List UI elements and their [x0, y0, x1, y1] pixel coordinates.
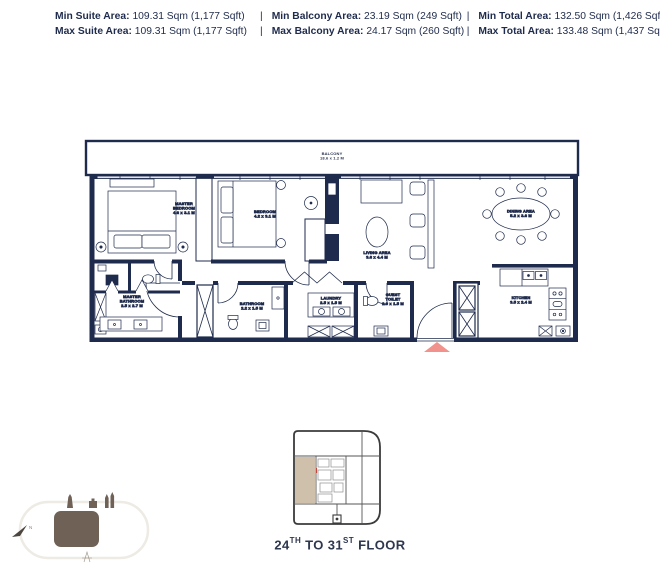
divider: |	[467, 9, 470, 24]
master-bedroom: MASTERBEDROOM4.6 x 3.1 M	[96, 179, 195, 253]
bed-icon	[108, 191, 176, 253]
svg-text:N: N	[29, 525, 32, 530]
living-area: LIVING AREA3.6 x 4.4 M	[361, 180, 434, 268]
svg-text:GUESTTOILET2.0 x 1.5 M: GUESTTOILET2.0 x 1.5 M	[382, 292, 404, 306]
appliance-column-icon	[549, 288, 566, 320]
min-balcony-area: Min Balcony Area: 23.19 Sqm (249 Sqft)	[272, 9, 458, 24]
svg-text:BEDROOM4.2 x 3.1 M: BEDROOM4.2 x 3.1 M	[254, 209, 276, 219]
tv-niche	[328, 183, 336, 195]
balcony: BALCONY18.6 x 1.2 M	[86, 141, 578, 175]
area-summary-row-max: Max Suite Area: 109.31 Sqm (1,177 Sqft) …	[55, 24, 660, 39]
cabinet-icon	[539, 326, 570, 336]
highlighted-unit	[295, 457, 315, 503]
floor-plan: BALCONY18.6 x 1.2 M	[80, 133, 592, 368]
laundry: LAUNDRY2.5 x 1.5 M	[308, 293, 354, 337]
divider: |	[260, 9, 263, 24]
mirror-icon	[305, 197, 318, 210]
landmark-tower-icon	[67, 494, 73, 508]
landmark-building-icon	[89, 499, 97, 509]
toilet-icon	[228, 316, 238, 330]
max-total-area: Max Total Area: 133.48 Sqm (1,437 Sqft)	[478, 24, 660, 39]
guest-toilet: GUESTTOILET2.0 x 1.5 M	[364, 292, 405, 336]
area-summary-row-min: Min Suite Area: 109.31 Sqm (1,177 Sqft) …	[55, 9, 660, 24]
armchair-icon	[410, 182, 425, 259]
bedroom: BEDROOM4.2 x 3.1 M	[218, 181, 318, 248]
floorplan-page: { "colors": { "navy": "#1f2b4c", "salmon…	[0, 0, 660, 575]
sink-icon	[256, 320, 269, 331]
cabinet-icon	[308, 326, 354, 337]
max-suite-area: Max Suite Area: 109.31 Sqm (1,177 Sqft)	[55, 24, 251, 39]
entrance-arrow-icon	[424, 342, 450, 352]
key-plan	[290, 428, 390, 528]
svg-text:LIVING AREA3.6 x 4.4 M: LIVING AREA3.6 x 4.4 M	[363, 250, 390, 260]
divider: |	[260, 24, 263, 39]
shelf-icon	[98, 265, 106, 271]
pivot-door-icon	[106, 280, 148, 291]
kitchen: KITCHEN3.5 x 2.4 M	[500, 269, 570, 336]
double-vanity-icon	[100, 317, 162, 331]
door-swings	[146, 261, 454, 341]
divider: |	[467, 24, 470, 39]
tv-console-icon	[361, 180, 402, 203]
area-summary: Min Suite Area: 109.31 Sqm (1,177 Sqft) …	[55, 9, 660, 39]
sofa-icon	[428, 180, 434, 268]
shaft-icon	[456, 283, 478, 338]
site-footprint	[54, 511, 99, 547]
svg-text:BATHROOM2.2 x 1.5 M: BATHROOM2.2 x 1.5 M	[240, 301, 265, 311]
shaft-icon	[197, 285, 213, 337]
bathroom: BATHROOM2.2 x 1.5 M	[228, 287, 284, 331]
min-total-area: Min Total Area: 132.50 Sqm (1,426 Sqft)	[478, 9, 660, 24]
floor-range-label: 24TH TO 31ST FLOOR	[250, 537, 430, 552]
toilet-icon	[364, 297, 379, 306]
svg-text:DINING AREA5.2 x 3.6 M: DINING AREA5.2 x 3.6 M	[507, 209, 535, 219]
coffee-table-icon	[366, 217, 388, 247]
min-suite-area: Min Suite Area: 109.31 Sqm (1,177 Sqft)	[55, 9, 251, 24]
svg-text:KITCHEN3.5 x 2.4 M: KITCHEN3.5 x 2.4 M	[510, 295, 532, 305]
shower-icon	[272, 287, 284, 309]
svg-text:BALCONY18.6 x 1.2 M: BALCONY18.6 x 1.2 M	[320, 151, 345, 161]
svg-text:MASTERBATHROOM2.5 x 2.7 M: MASTERBATHROOM2.5 x 2.7 M	[120, 294, 145, 308]
svg-text:MASTERBEDROOM4.6 x 3.1 M: MASTERBEDROOM4.6 x 3.1 M	[173, 201, 195, 215]
sink-icon	[374, 326, 388, 336]
svg-text:LAUNDRY2.5 x 1.5 M: LAUNDRY2.5 x 1.5 M	[320, 296, 342, 306]
dresser-icon	[110, 179, 154, 187]
site-map: N	[10, 470, 160, 574]
dining-area: DINING AREA5.2 x 3.6 M	[483, 184, 560, 245]
nightstand-icon	[277, 181, 286, 248]
toilet-icon	[143, 275, 161, 284]
max-balcony-area: Max Balcony Area: 24.17 Sqm (260 Sqft)	[272, 24, 458, 39]
